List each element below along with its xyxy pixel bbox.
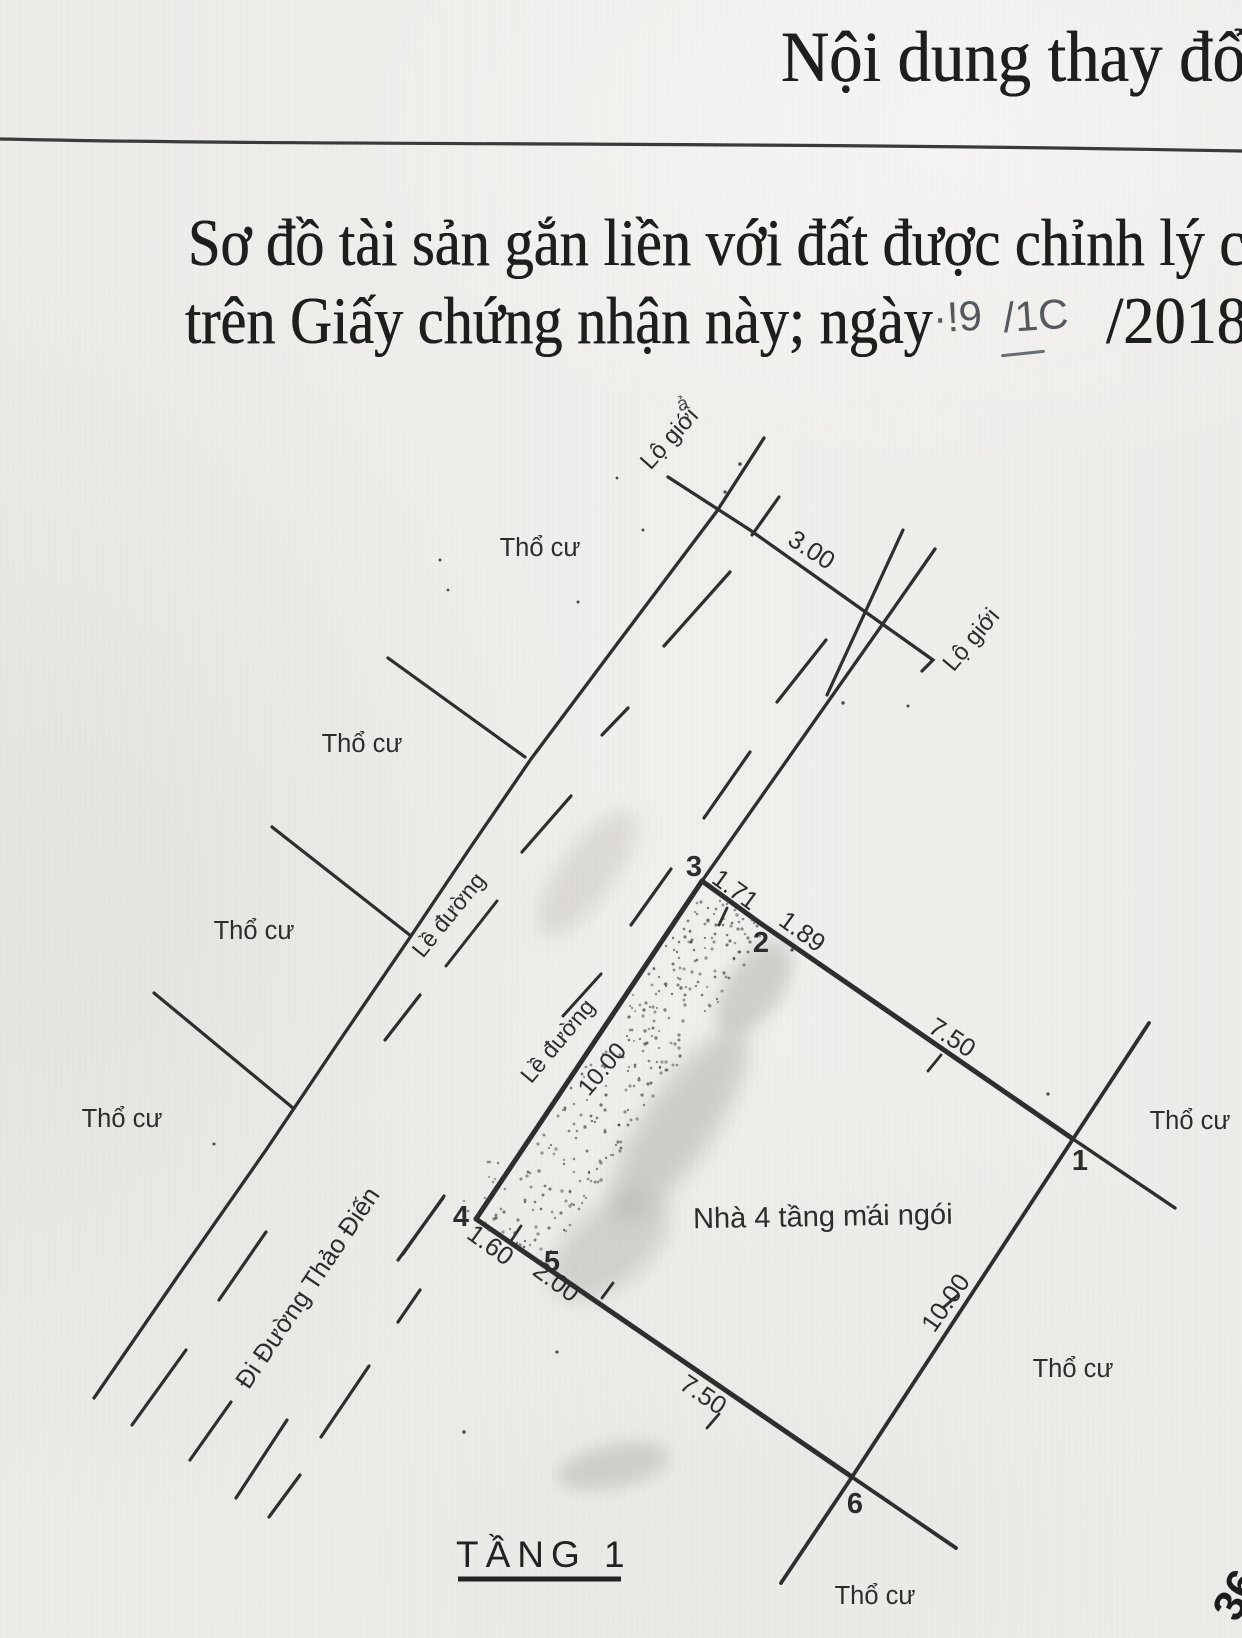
svg-text:2: 2 (753, 927, 769, 959)
svg-text:Thổ cư: Thổ cư (835, 1582, 916, 1610)
svg-text:7.50: 7.50 (675, 1370, 732, 1421)
svg-text:Thổ cư: Thổ cư (1150, 1107, 1231, 1135)
svg-text:1.60: 1.60 (462, 1219, 519, 1271)
svg-text:10.00: 10.00 (573, 1038, 632, 1101)
svg-text:6: 6 (847, 1488, 863, 1520)
svg-text:Thổ cư: Thổ cư (500, 534, 581, 562)
svg-text:TẦNG 1: TẦNG 1 (456, 1534, 632, 1575)
svg-text:3: 3 (686, 851, 702, 883)
svg-text:Lộ giới: Lộ giới (937, 603, 1005, 676)
svg-text:Thổ cư: Thổ cư (1033, 1355, 1114, 1383)
svg-text:Thổ cư: Thổ cư (82, 1105, 163, 1133)
svg-text:1: 1 (1072, 1145, 1088, 1177)
svg-text:Lộ giới: Lộ giới (635, 402, 704, 474)
svg-text:Thổ cư: Thổ cư (214, 917, 295, 945)
svg-text:3.00: 3.00 (783, 525, 840, 576)
svg-text:Đi Đường Thảo Điến: Đi Đường Thảo Điến (230, 1182, 385, 1393)
svg-text:5: 5 (544, 1246, 560, 1278)
svg-text:36: 36 (1203, 1562, 1242, 1628)
svg-text:Nhà 4 tầng mái ngói: Nhà 4 tầng mái ngói (693, 1199, 953, 1236)
svg-text:4: 4 (453, 1201, 469, 1233)
svg-text:Thổ cư: Thổ cư (322, 730, 403, 758)
